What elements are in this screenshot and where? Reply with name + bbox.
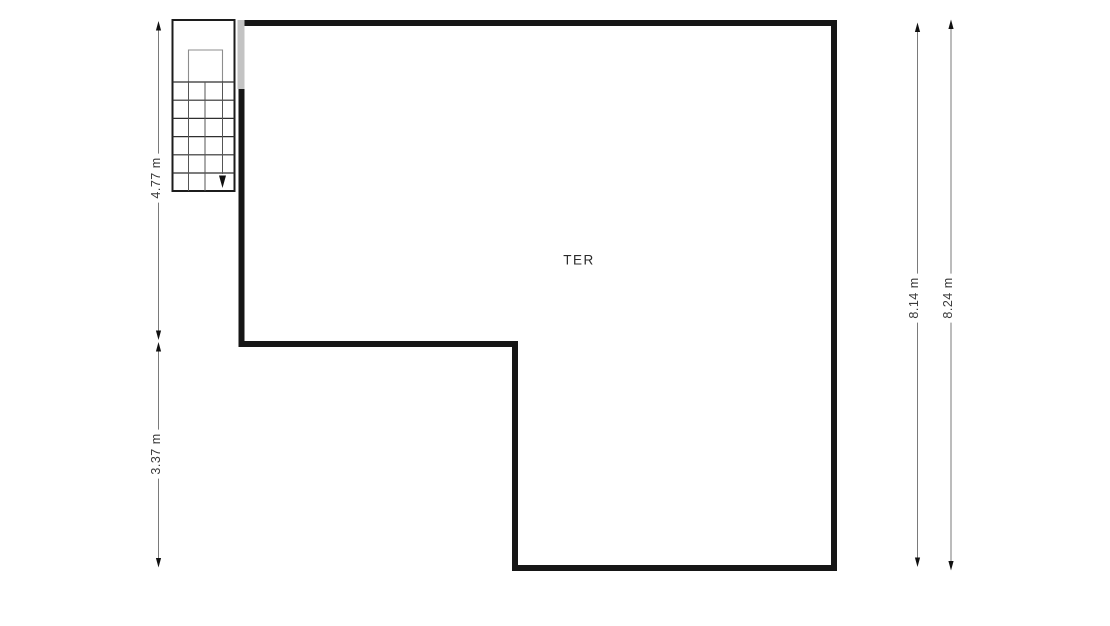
arrow-down-icon	[948, 561, 953, 571]
dimension-label-left-lower: 3.37 m	[148, 429, 162, 478]
arrow-up-icon	[156, 342, 161, 352]
dimension-label-left-upper: 4.77 m	[148, 153, 162, 202]
dimension-label-right-outer: 8.24 m	[940, 273, 954, 322]
staircase-outline	[173, 20, 235, 191]
dimension-label-right-inner: 8.14 m	[906, 273, 920, 322]
room-wall-outline	[242, 23, 835, 568]
staircase	[173, 20, 235, 191]
arrow-down-icon	[915, 558, 920, 568]
floorplan-page: 4.77 m 3.37 m 8.14 m 8.24 m TER	[0, 0, 1110, 626]
arrow-up-icon	[948, 20, 953, 30]
room-name-label: TER	[563, 253, 595, 268]
arrow-up-icon	[915, 23, 920, 33]
arrow-down-icon	[156, 331, 161, 341]
arrow-up-icon	[156, 21, 161, 31]
door-opening	[238, 20, 245, 89]
arrow-down-icon	[156, 558, 161, 568]
